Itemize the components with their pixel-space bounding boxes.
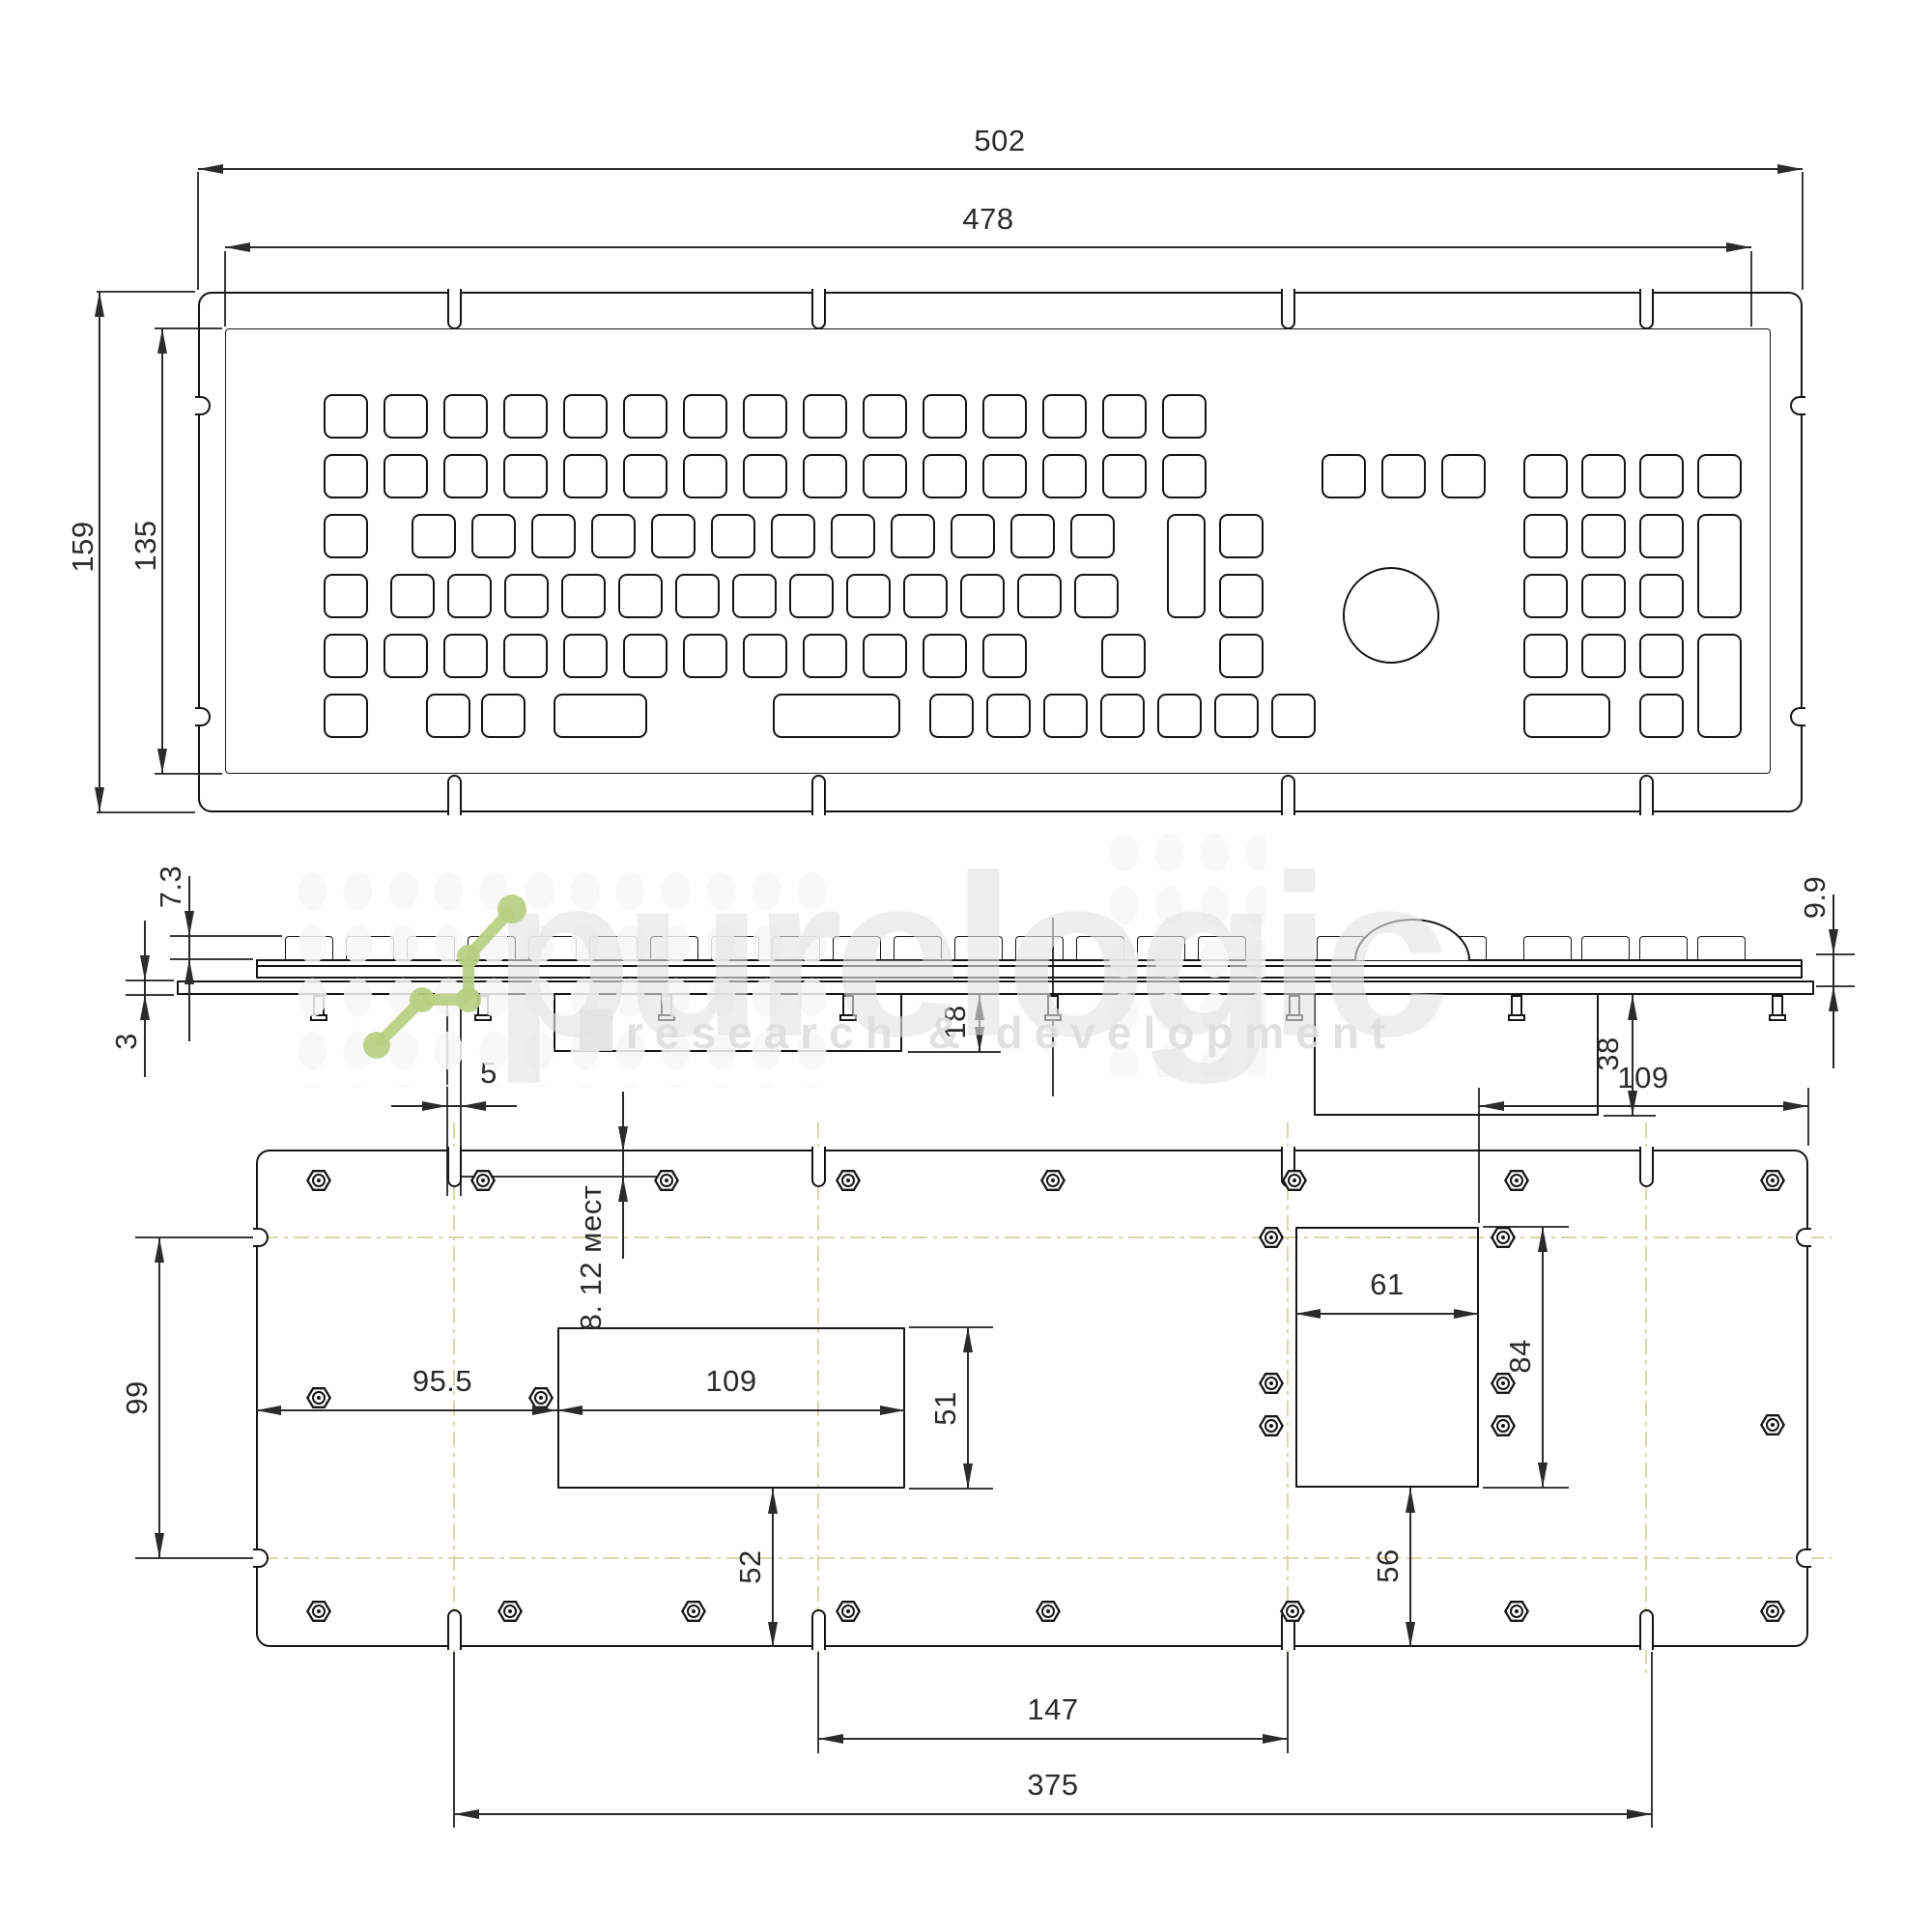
key-cutout: [771, 514, 815, 558]
dimension-label: 9.9: [1798, 876, 1833, 920]
mounting-slot-bottom: [447, 775, 462, 815]
key-cutout: [1697, 634, 1742, 738]
dim-arrowhead: [422, 1101, 447, 1111]
key-cutout: [1639, 694, 1684, 738]
key-cutout: [1523, 514, 1568, 558]
dim-arrowhead: [1627, 1809, 1652, 1819]
key-cutout: [803, 394, 847, 439]
hex-stud-center: [846, 1179, 850, 1182]
dim-arrowhead: [185, 911, 194, 936]
dimension-label: 99: [120, 1380, 155, 1414]
key-cutout: [1219, 574, 1264, 618]
key-cutout: [1697, 454, 1742, 498]
key-cutout: [743, 454, 787, 498]
hex-stud: [1760, 1413, 1785, 1436]
key-cutout: [1441, 454, 1486, 498]
key-cutout: [1581, 574, 1626, 618]
hex-stud-center: [1269, 1424, 1273, 1428]
dimension-line: [1833, 954, 1834, 986]
extension-line: [97, 811, 195, 812]
key-cutout: [1167, 514, 1206, 618]
hex-stud-center: [1515, 1179, 1519, 1182]
dimension-label: 3: [109, 1033, 144, 1050]
dimension-line: [144, 980, 146, 995]
dim-arrowhead: [1538, 1463, 1548, 1488]
key-cutout: [324, 634, 368, 678]
key-cutout: [324, 574, 368, 618]
key-cutout: [711, 514, 755, 558]
dim-arrowhead: [1406, 1488, 1415, 1513]
extension-line: [126, 994, 174, 995]
hex-stud: [1491, 1372, 1516, 1395]
dimension-line: [1542, 1227, 1544, 1488]
hex-stud: [470, 1169, 496, 1192]
hex-stud: [681, 1600, 706, 1623]
key-cutout: [982, 634, 1027, 678]
dim-arrowhead: [618, 1177, 628, 1202]
key-cutout: [1043, 694, 1088, 738]
key-cutout: [563, 634, 608, 678]
dim-arrowhead: [1783, 1101, 1808, 1111]
extension-line: [453, 1652, 454, 1828]
hex-stud: [1259, 1372, 1284, 1395]
key-cutout: [1219, 634, 1264, 678]
key-cutout: [426, 694, 470, 738]
key-cutout: [324, 514, 368, 558]
hex-stud-center: [1501, 1236, 1505, 1239]
hex-stud-center: [1501, 1424, 1505, 1428]
extension-line: [135, 1236, 253, 1237]
key-cutout: [863, 394, 907, 439]
dim-arrowhead: [1777, 164, 1803, 174]
key-cutout: [1219, 514, 1264, 558]
hex-stud-center: [508, 1609, 512, 1613]
key-cutout: [1010, 514, 1055, 558]
keycap-profile: [407, 936, 455, 961]
hex-stud: [654, 1169, 679, 1192]
hex-stud: [836, 1169, 861, 1192]
key-cutout: [986, 694, 1031, 738]
key-cutout: [1157, 694, 1202, 738]
key-cutout: [563, 454, 608, 498]
mounting-slot-bottom: [1281, 775, 1295, 815]
key-cutout: [1523, 694, 1610, 738]
key-cutout: [443, 454, 488, 498]
hex-stud-center: [317, 1179, 321, 1182]
key-cutout: [324, 694, 368, 738]
dim-arrowhead: [185, 959, 194, 984]
side-notch-right: [1790, 396, 1805, 415]
key-cutout: [960, 574, 1005, 618]
extension-line: [1807, 1088, 1808, 1146]
dimension-label: 159: [66, 521, 100, 572]
key-cutout: [384, 634, 428, 678]
key-cutout: [623, 394, 668, 439]
key-cutout: [623, 454, 668, 498]
hex-stud-center: [481, 1179, 485, 1182]
hex-stud-center: [1515, 1609, 1519, 1613]
side-notch-right: [1796, 1548, 1811, 1568]
key-cutout: [675, 574, 720, 618]
key-cutout: [1523, 574, 1568, 618]
key-cutout: [447, 574, 492, 618]
hex-stud: [1036, 1600, 1061, 1623]
hex-stud: [497, 1600, 523, 1623]
dimension-line: [1295, 1313, 1479, 1315]
key-cutout: [1639, 454, 1684, 498]
watermark-tagline-block: [580, 1009, 612, 1051]
key-cutout: [503, 634, 548, 678]
keycap-profile: [1697, 936, 1746, 961]
mounting-slot-bottom: [1639, 775, 1654, 815]
dimension-label: 135: [128, 520, 163, 571]
hex-stud: [1504, 1169, 1529, 1192]
hex-stud: [1282, 1169, 1307, 1192]
dim-arrowhead: [454, 1809, 479, 1819]
mounting-slot-top: [811, 1147, 826, 1187]
dim-arrowhead: [95, 292, 104, 317]
key-cutout: [1214, 694, 1259, 738]
hex-stud: [1259, 1414, 1284, 1437]
key-cutout: [1523, 634, 1568, 678]
dim-arrowhead: [225, 242, 250, 252]
key-cutout: [1162, 394, 1207, 439]
key-cutout: [891, 514, 935, 558]
key-cutout: [1523, 454, 1568, 498]
key-cutout: [1070, 514, 1115, 558]
hex-stud-center: [846, 1609, 850, 1613]
dimension-label: 61: [1370, 1267, 1404, 1302]
mounting-slot-top: [447, 289, 462, 329]
dimension-label: 8. 12 мест: [574, 1185, 609, 1331]
key-cutout: [324, 454, 368, 498]
key-cutout: [1581, 634, 1626, 678]
key-cutout: [1162, 454, 1207, 498]
extension-line: [1651, 1652, 1652, 1828]
hex-stud: [836, 1600, 861, 1623]
controller-cutout: [557, 1327, 905, 1489]
key-cutout: [390, 574, 435, 618]
key-cutout: [1017, 574, 1062, 618]
mounting-stud-profile: [1772, 995, 1783, 1016]
dim-arrowhead: [157, 328, 167, 354]
dim-arrowhead: [768, 1622, 778, 1647]
key-cutout: [503, 394, 548, 439]
keycap-profile: [1523, 936, 1572, 961]
dimension-label: 502: [974, 124, 1025, 158]
hex-stud-center: [317, 1609, 321, 1613]
key-cutout: [503, 454, 548, 498]
dimension-line: [447, 1105, 461, 1107]
hex-stud-center: [1269, 1381, 1273, 1385]
key-cutout: [384, 454, 428, 498]
dim-arrowhead: [768, 1489, 778, 1514]
dim-arrowhead: [880, 1406, 905, 1415]
mounting-slot-bottom: [1639, 1609, 1654, 1650]
hex-stud: [1491, 1226, 1516, 1249]
mounting-slot-bottom: [811, 1609, 826, 1650]
key-cutout: [903, 574, 948, 618]
key-cutout: [1101, 634, 1146, 678]
dim-arrowhead: [1628, 995, 1637, 1020]
dimension-line: [198, 168, 1803, 170]
dimension-line: [557, 1409, 905, 1411]
dim-arrowhead: [140, 955, 150, 980]
dimension-label: 375: [1027, 1768, 1078, 1803]
dim-arrowhead: [140, 995, 150, 1020]
key-cutout: [618, 574, 663, 618]
key-cutout: [1042, 454, 1087, 498]
dimension-label: 109: [705, 1364, 756, 1399]
key-cutout: [923, 454, 967, 498]
key-cutout: [803, 454, 847, 498]
mounting-stud-foot: [1769, 1014, 1786, 1021]
key-cutout: [929, 694, 974, 738]
dimension-line: [1479, 1105, 1808, 1107]
dim-arrowhead: [818, 1734, 843, 1744]
dim-arrowhead: [157, 749, 167, 774]
dimension-line: [622, 1151, 624, 1177]
hex-stud-center: [1269, 1236, 1273, 1239]
key-cutout: [531, 514, 576, 558]
mounting-stud-profile: [313, 995, 325, 1016]
key-cutout: [683, 634, 727, 678]
dim-arrowhead: [618, 1126, 628, 1151]
key-cutout: [591, 514, 636, 558]
dimension-label: 478: [962, 202, 1013, 237]
mounting-slot-bottom: [447, 1609, 462, 1650]
hex-stud: [1760, 1169, 1785, 1192]
key-cutout: [982, 454, 1027, 498]
dim-arrowhead: [1829, 929, 1838, 954]
key-cutout: [743, 634, 787, 678]
dim-arrowhead: [256, 1406, 281, 1415]
key-cutout: [1074, 574, 1119, 618]
mounting-slot-top: [1639, 1147, 1654, 1187]
key-cutout: [683, 394, 727, 439]
dimension-label: 56: [1371, 1548, 1406, 1582]
dim-arrowhead: [1295, 1309, 1321, 1319]
dim-arrowhead: [198, 164, 223, 174]
dimension-line: [454, 1813, 1652, 1815]
hex-stud-center: [1291, 1609, 1294, 1613]
key-cutout: [623, 634, 668, 678]
dim-arrowhead: [963, 1463, 973, 1489]
keycap-profile: [1581, 936, 1630, 961]
hex-stud: [1259, 1226, 1284, 1249]
mounting-slot-bottom: [811, 775, 826, 815]
key-cutout: [412, 514, 456, 558]
trackball-module-cutout: [1295, 1227, 1479, 1488]
key-cutout: [1271, 694, 1316, 738]
mounting-stud-profile: [477, 995, 489, 1016]
key-cutout: [443, 634, 488, 678]
key-cutout: [554, 694, 647, 738]
dim-arrowhead: [1406, 1622, 1415, 1647]
key-cutout: [1697, 514, 1742, 618]
dimension-label: 51: [928, 1391, 963, 1425]
dimension-line: [188, 936, 190, 959]
dim-arrowhead: [532, 1406, 557, 1415]
dim-arrowhead: [1726, 242, 1751, 252]
key-cutout: [1581, 454, 1626, 498]
dim-arrowhead: [1454, 1309, 1479, 1319]
key-cutout: [504, 574, 549, 618]
dimension-label: 95.5: [412, 1364, 472, 1399]
key-cutout: [481, 694, 526, 738]
key-cutout: [923, 634, 967, 678]
dim-arrowhead: [1263, 1734, 1288, 1744]
extension-line: [97, 291, 195, 292]
extension-line: [1802, 172, 1803, 290]
mounting-stud-foot: [474, 1014, 492, 1021]
dim-arrowhead: [1829, 986, 1838, 1011]
key-cutout: [1639, 574, 1684, 618]
mounting-slot-top: [1281, 289, 1295, 329]
key-cutout: [1581, 514, 1626, 558]
extension-line: [126, 980, 174, 980]
hex-stud-center: [1501, 1381, 1505, 1385]
key-cutout: [561, 574, 606, 618]
mounting-stud-foot: [1508, 1014, 1525, 1021]
hex-stud-center: [1293, 1179, 1296, 1182]
key-cutout: [1381, 454, 1426, 498]
key-cutout: [1042, 394, 1087, 439]
hex-stud: [306, 1386, 331, 1409]
side-notch-right: [1790, 707, 1805, 726]
key-cutout: [324, 394, 368, 439]
key-cutout: [1321, 454, 1366, 498]
dimension-label: 52: [733, 1549, 768, 1583]
dimension-label: 7.3: [154, 866, 188, 909]
hex-stud-center: [1771, 1609, 1775, 1613]
dimension-label: 147: [1027, 1692, 1078, 1727]
key-cutout: [743, 394, 787, 439]
hex-stud: [306, 1169, 331, 1192]
key-cutout: [1102, 454, 1147, 498]
mounting-slot-top: [811, 289, 826, 329]
dimension-line: [818, 1738, 1288, 1740]
watermark-tagline-text: research & development: [626, 1007, 1397, 1059]
dimension-label: 84: [1503, 1339, 1538, 1373]
mounting-slot-top: [1639, 289, 1654, 329]
hex-stud-center: [665, 1179, 668, 1182]
key-cutout: [683, 454, 727, 498]
mounting-stud-foot: [310, 1014, 327, 1021]
dim-arrowhead: [461, 1101, 486, 1111]
key-cutout: [443, 394, 488, 439]
dim-arrowhead: [1538, 1227, 1548, 1252]
key-cutout: [563, 394, 608, 439]
mounting-slot-top: [447, 1147, 462, 1187]
trackball-cutout: [1343, 567, 1439, 664]
dim-arrowhead: [155, 1533, 164, 1558]
dimension-line: [158, 1237, 160, 1558]
key-cutout: [982, 394, 1027, 439]
hex-stud-center: [1771, 1423, 1775, 1427]
hex-stud-center: [317, 1396, 321, 1400]
key-cutout: [789, 574, 834, 618]
keycap-profile: [346, 936, 394, 961]
mounting-stud-profile: [1511, 995, 1522, 1016]
key-cutout: [831, 514, 875, 558]
keycap-profile: [1639, 936, 1688, 961]
hex-stud-center: [1771, 1179, 1775, 1182]
dimension-line: [225, 246, 1751, 248]
hex-stud: [1491, 1414, 1516, 1437]
extension-line: [170, 958, 253, 959]
side-notch-right: [1796, 1228, 1811, 1247]
technical-drawing-canvas: 5024781591357.3318389.958. 12 мест109999…: [0, 0, 1932, 1932]
key-cutout: [923, 394, 967, 439]
hex-stud: [1280, 1600, 1305, 1623]
extension-line: [197, 172, 198, 290]
key-cutout: [651, 514, 696, 558]
hex-stud: [1040, 1169, 1065, 1192]
hex-stud-center: [539, 1396, 543, 1400]
key-cutout: [951, 514, 995, 558]
hex-stud: [1504, 1600, 1529, 1623]
hex-stud-center: [692, 1609, 696, 1613]
key-cutout: [803, 634, 847, 678]
dim-arrowhead: [1479, 1101, 1504, 1111]
key-cutout: [846, 574, 891, 618]
dimension-label: 109: [1617, 1061, 1668, 1095]
dimension-line: [256, 1409, 557, 1411]
hex-stud: [306, 1600, 331, 1623]
key-cutout: [863, 634, 907, 678]
rear-panel-outline: [256, 1150, 1808, 1647]
keycap-profile: [285, 936, 333, 961]
key-cutout: [1639, 634, 1684, 678]
hex-stud: [1760, 1600, 1785, 1623]
dim-arrowhead: [95, 787, 104, 812]
key-cutout: [732, 574, 777, 618]
key-cutout: [1100, 694, 1145, 738]
key-cutout: [1639, 514, 1684, 558]
hex-stud-center: [1046, 1609, 1050, 1613]
key-cutout: [863, 454, 907, 498]
dim-arrowhead: [963, 1327, 973, 1352]
extension-line: [135, 1557, 253, 1558]
dim-arrowhead: [557, 1406, 582, 1415]
key-cutout: [384, 394, 428, 439]
key-cutout: [471, 514, 516, 558]
key-cutout: [1102, 394, 1147, 439]
dim-arrowhead: [155, 1237, 164, 1263]
key-cutout: [773, 694, 900, 738]
hex-stud-center: [1051, 1179, 1055, 1182]
